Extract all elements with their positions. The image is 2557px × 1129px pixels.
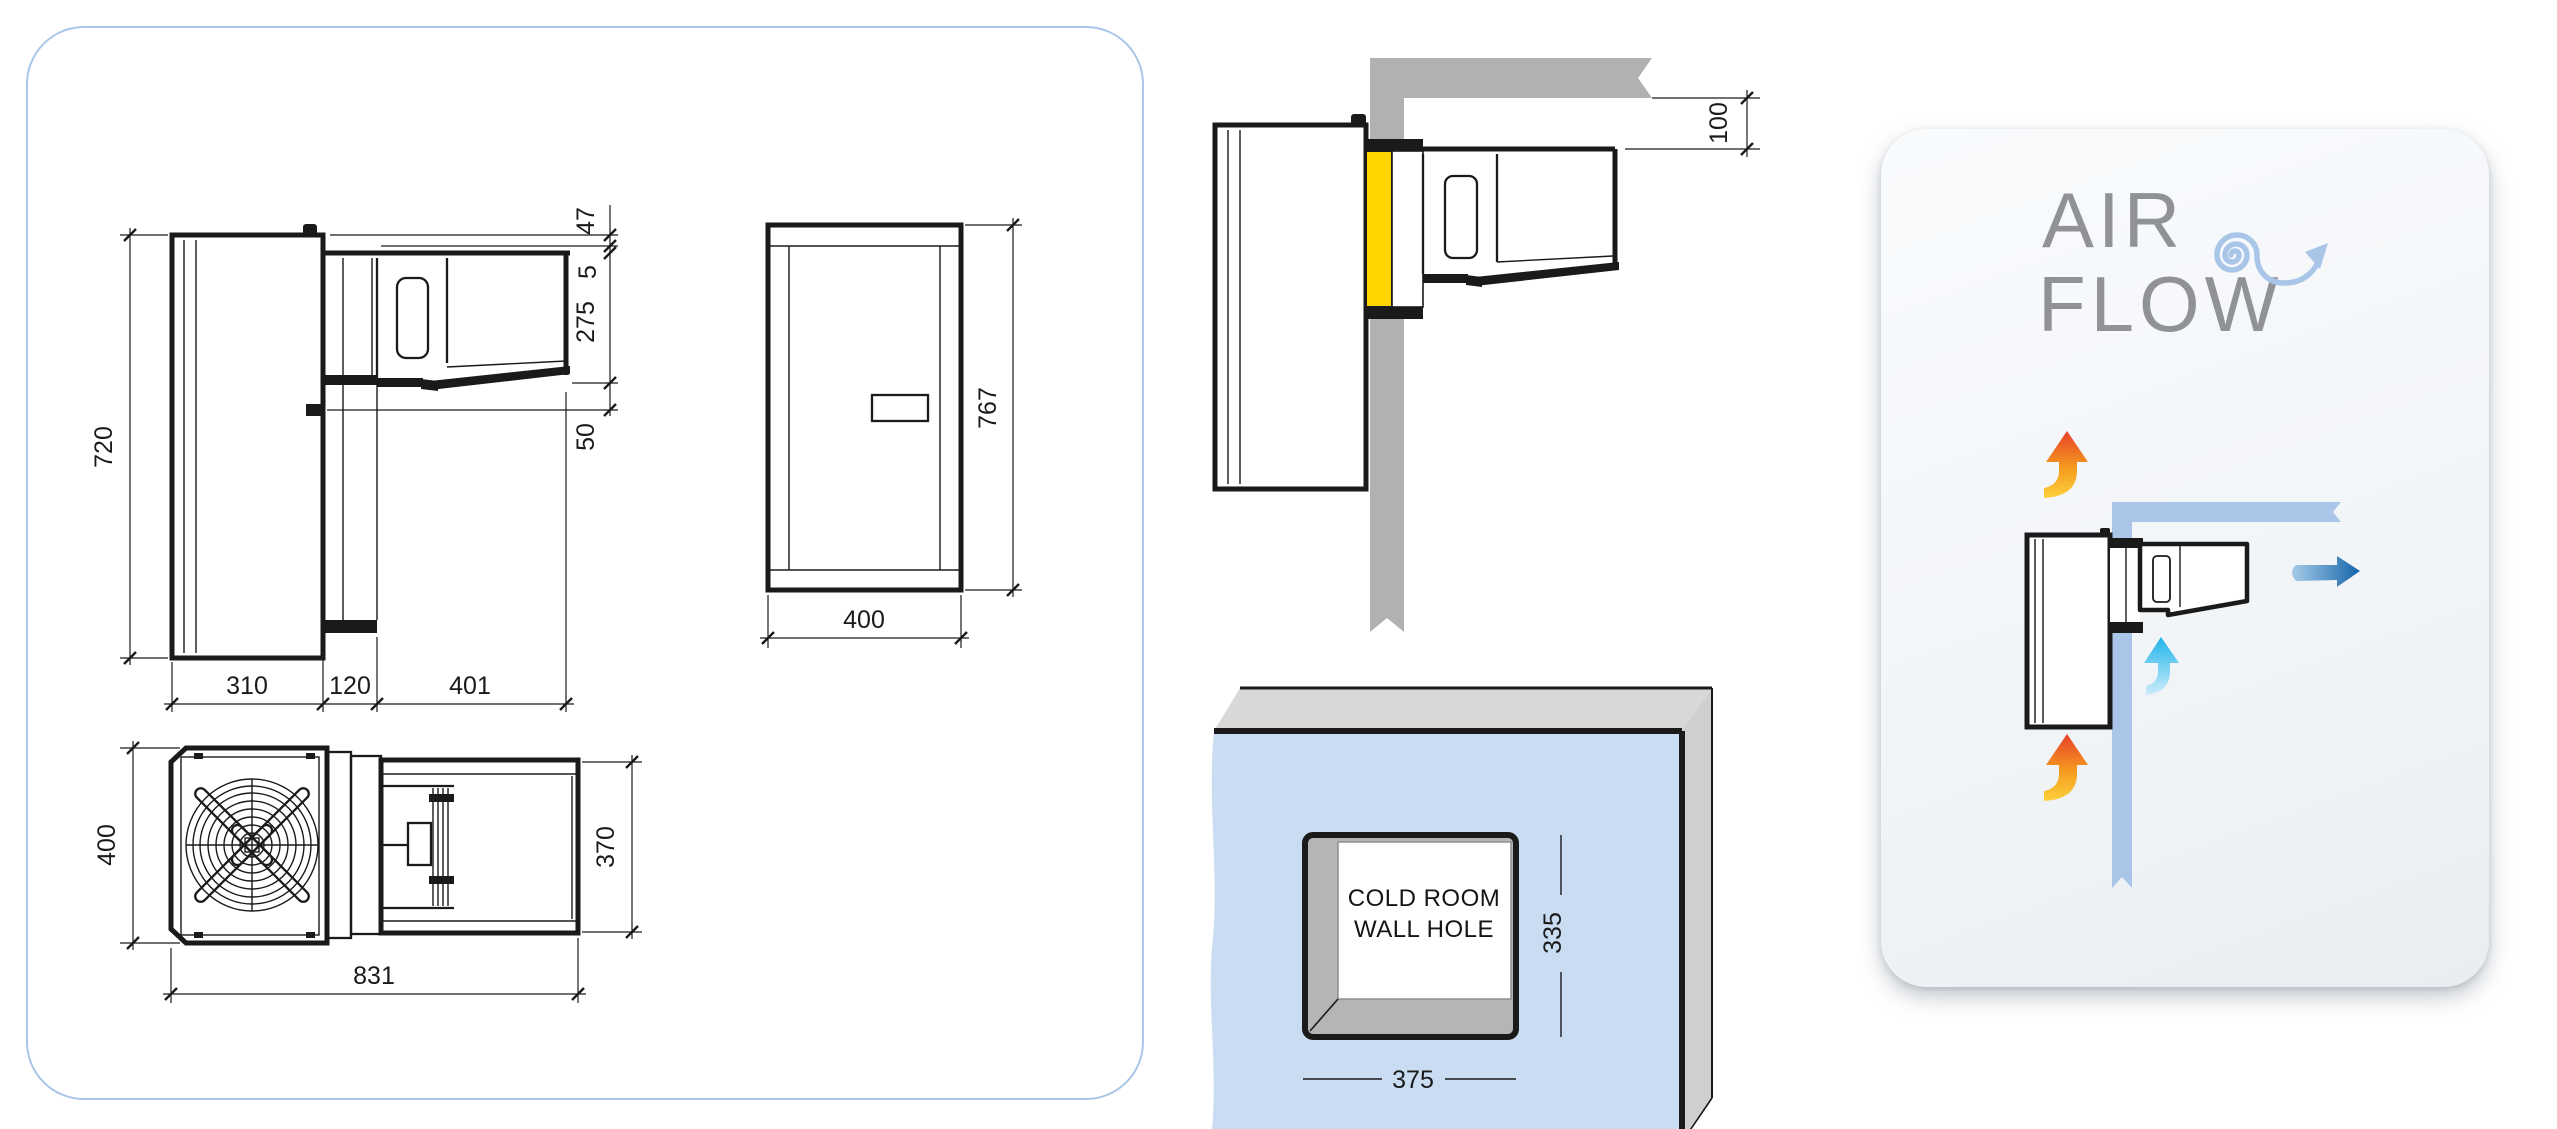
dim-label-310: 310 xyxy=(226,672,268,700)
cold-air-up-arrow-icon xyxy=(2144,637,2179,695)
dim-label-120: 120 xyxy=(329,672,371,700)
page: { "colors":{ "ink":"#1a1a1a", "panel-bor… xyxy=(0,0,2557,1129)
wall-section-drawing: 100 xyxy=(1195,40,1795,650)
fan-grille-icon xyxy=(186,779,318,911)
dim-label-47: 47 xyxy=(572,207,600,235)
wall-hole-drawing: COLD ROOM WALL HOLE 375 335 xyxy=(1195,660,1795,1129)
front-view-drawing: 400 767 xyxy=(740,200,1040,670)
dim-label-370: 370 xyxy=(592,826,620,868)
air-flow-diagram: AIR FLOW xyxy=(1881,129,2489,987)
dim-label-5: 5 xyxy=(574,265,602,279)
dim-label-720: 720 xyxy=(90,426,118,468)
dim-label-50: 50 xyxy=(572,423,600,451)
dim-label-100: 100 xyxy=(1705,102,1733,144)
side-view-dimensions: 720 47 5 275 50 310 120 401 xyxy=(90,205,618,712)
side-view-drawing: 720 47 5 275 50 310 120 401 xyxy=(90,195,650,725)
dim-label-401: 401 xyxy=(449,672,491,700)
dim-label-400: 400 xyxy=(843,606,885,634)
dim-label-831: 831 xyxy=(353,962,395,990)
wall-hole: COLD ROOM WALL HOLE xyxy=(1305,835,1516,1037)
wall-hole-label-line2: WALL HOLE xyxy=(1354,916,1494,943)
dim-label-767: 767 xyxy=(974,387,1002,429)
air-flow-unit xyxy=(2027,528,2247,727)
cold-air-right-arrow-icon xyxy=(2292,556,2360,587)
dim-label-275: 275 xyxy=(572,301,600,343)
dim-label-400-top: 400 xyxy=(93,824,121,866)
air-flow-title-line2: FLOW xyxy=(2038,260,2283,348)
air-flow-title-line1: AIR xyxy=(2042,176,2184,264)
warm-air-up-arrow-top-icon xyxy=(2044,431,2088,498)
wall-hole-label-line1: COLD ROOM xyxy=(1348,885,1501,912)
top-view-drawing: 400 370 831 xyxy=(95,730,655,1015)
dim-label-335: 335 xyxy=(1539,912,1567,954)
wall-section-unit xyxy=(1215,114,1619,489)
top-view-body xyxy=(171,748,578,943)
side-view-body xyxy=(172,224,570,658)
front-view-body xyxy=(768,225,961,590)
warm-air-up-arrow-bottom-icon xyxy=(2044,734,2088,801)
wall-section-dimension: 100 xyxy=(1625,90,1760,157)
dim-label-375: 375 xyxy=(1392,1066,1434,1094)
